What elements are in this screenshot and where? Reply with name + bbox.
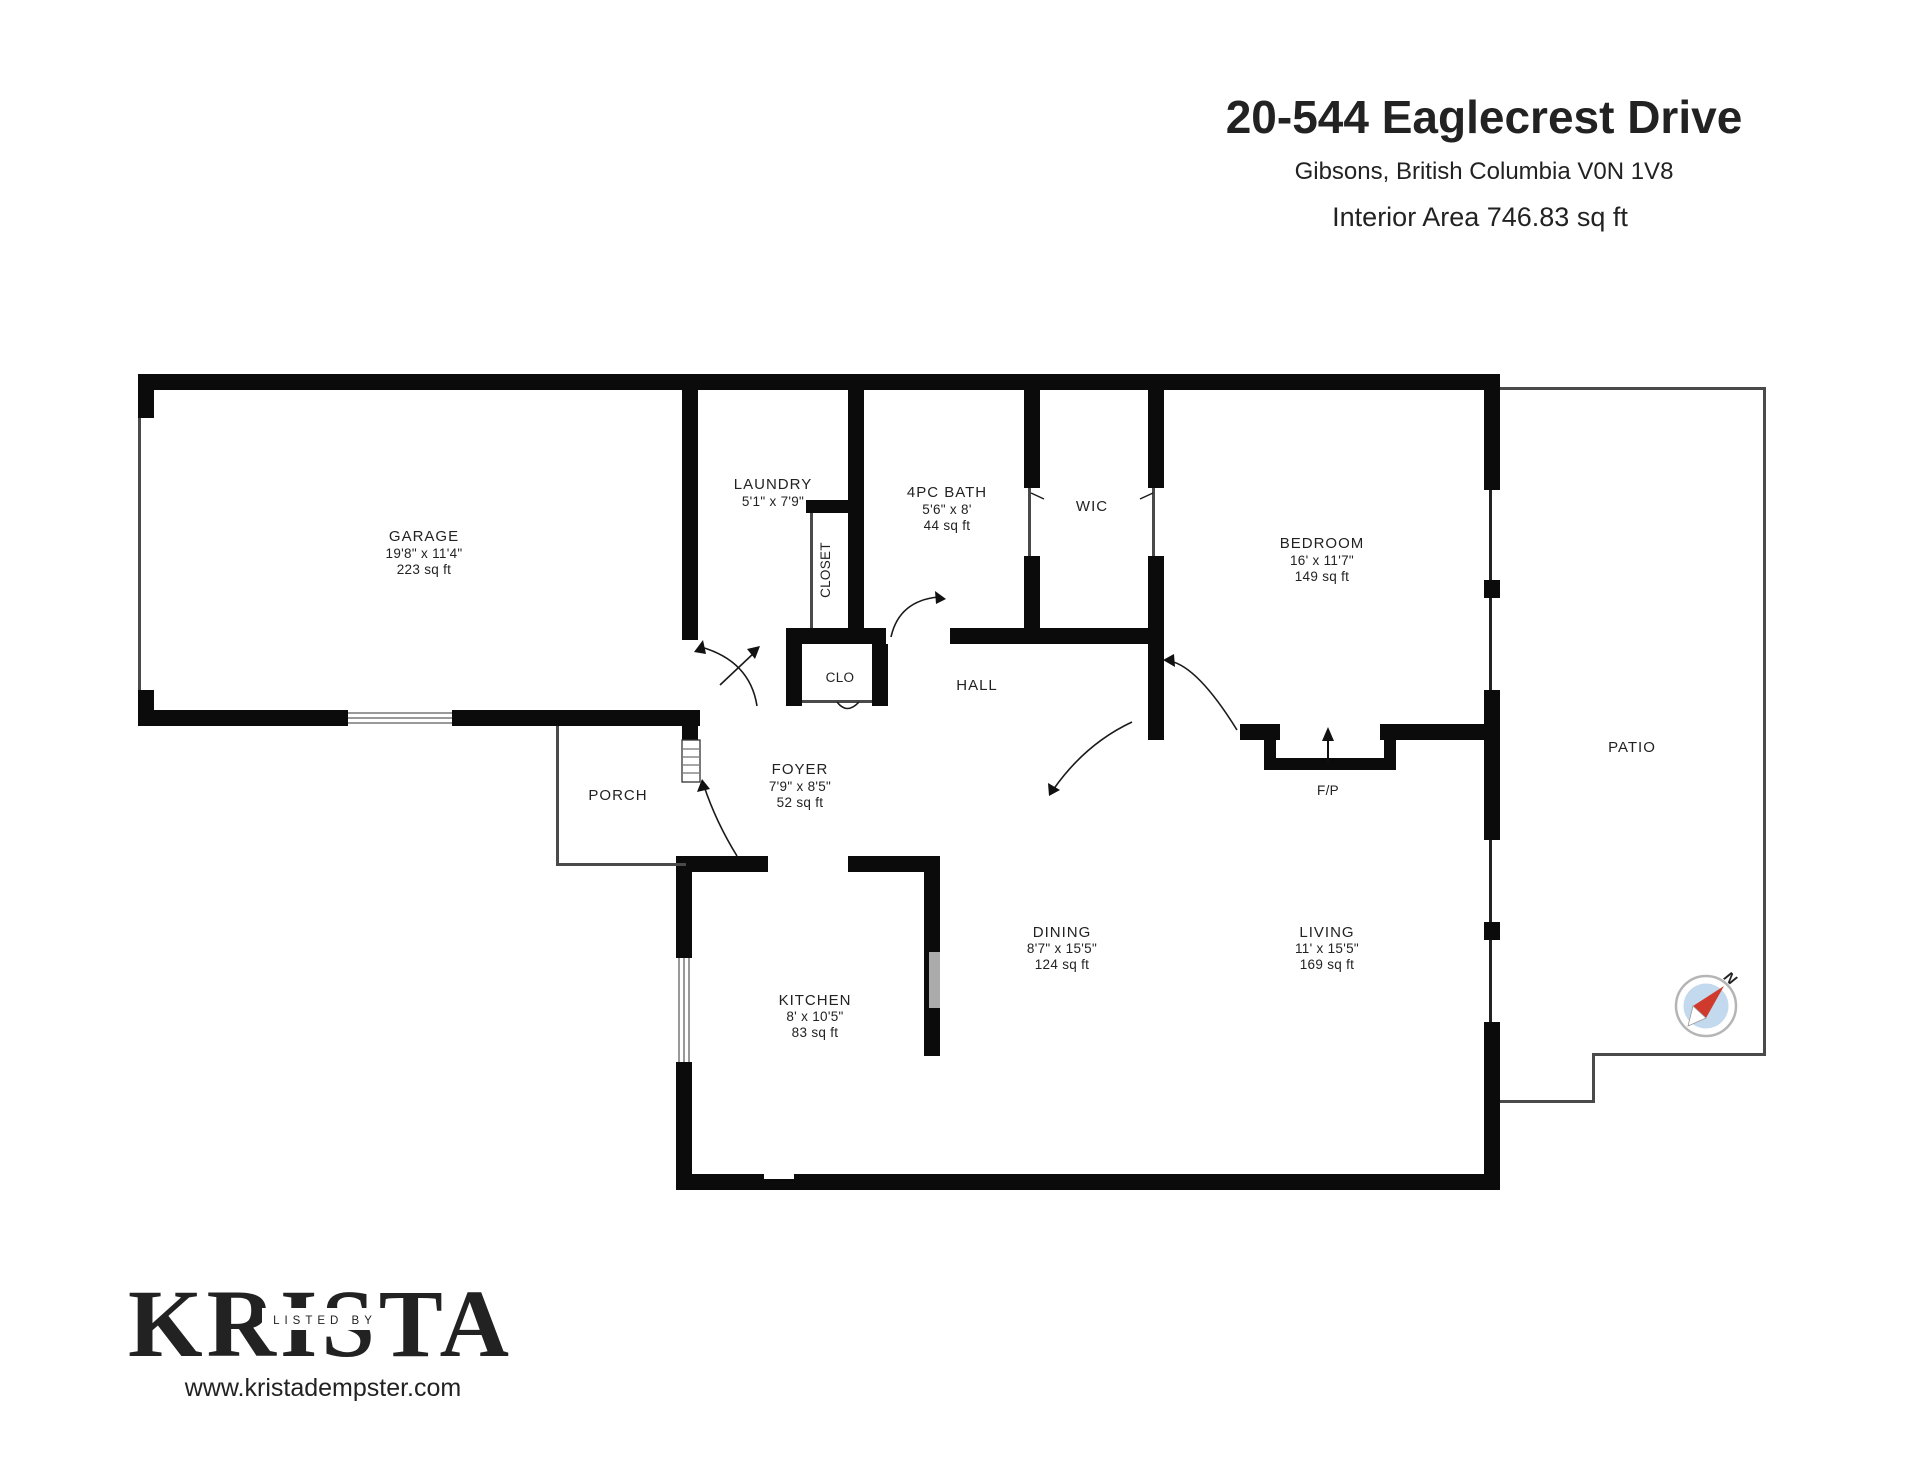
room-name: HALL: [956, 677, 998, 694]
wall-segment: [802, 628, 886, 644]
wall-segment: [1024, 556, 1040, 644]
wall-segment: [1484, 922, 1500, 940]
room-label-foyer: FOYER 7'9" x 8'5" 52 sq ft: [769, 761, 831, 810]
room-label-living: LIVING 11' x 15'5" 169 sq ft: [1295, 924, 1359, 972]
porch-outline: [556, 863, 686, 866]
room-label-closet: CLOSET: [818, 542, 833, 598]
wall-segment: [676, 856, 768, 872]
window-line: [348, 717, 452, 719]
room-label-dining: DINING 8'7" x 15'5" 124 sq ft: [1027, 924, 1097, 972]
patio-outline: [1592, 1053, 1766, 1056]
wall-segment: [806, 500, 848, 513]
room-name: WIC: [1076, 498, 1108, 515]
wall-segment: [676, 1062, 692, 1190]
wall-segment: [1240, 724, 1280, 740]
wall-segment: [452, 710, 700, 726]
room-name: LIVING: [1299, 924, 1354, 941]
fireplace-wall: [1384, 740, 1396, 770]
wall-segment: [682, 726, 698, 740]
door-arc-entry: [704, 786, 737, 856]
door-tick: [1140, 493, 1153, 499]
window-line: [1489, 940, 1492, 1022]
room-name: LAUNDRY: [734, 476, 812, 493]
logo-tagline: LISTED BY: [273, 1315, 377, 1327]
room-name: F/P: [1317, 783, 1339, 798]
header: 20-544 Eaglecrest Drive Gibsons, British…: [1226, 91, 1743, 232]
window-line: [1489, 840, 1492, 922]
room-label-clo: CLO: [826, 670, 855, 685]
page-subtitle: Gibsons, British Columbia V0N 1V8: [1295, 158, 1674, 185]
room-dims: 19'8" x 11'4": [386, 546, 463, 561]
room-label-garage: GARAGE 19'8" x 11'4" 223 sq ft: [386, 528, 463, 577]
wall-segment: [1148, 390, 1164, 488]
wall-segment: [848, 390, 864, 644]
wall-segment: [786, 628, 802, 706]
window-line: [348, 722, 452, 724]
room-area: 223 sq ft: [397, 562, 452, 577]
wall-segment: [138, 710, 348, 726]
room-name: PORCH: [588, 787, 647, 804]
room-labels: GARAGE 19'8" x 11'4" 223 sq ft LAUNDRY 5…: [386, 476, 1656, 1040]
room-name: KITCHEN: [779, 992, 852, 1009]
page-title: 20-544 Eaglecrest Drive: [1226, 91, 1743, 143]
wall-segment: [1484, 580, 1500, 598]
room-label-wic: WIC: [1076, 498, 1108, 515]
room-dims: 8'7" x 15'5": [1027, 941, 1097, 956]
room-name: CLO: [826, 670, 855, 685]
footer: KRISTA LISTED BY www.kristadempster.com: [128, 1270, 513, 1402]
room-area: 124 sq ft: [1035, 957, 1090, 972]
room-label-laundry: LAUNDRY 5'1" x 7'9": [734, 476, 812, 509]
wall-segment: [676, 1174, 1500, 1190]
door-arrow: [1163, 654, 1175, 667]
wall-segment: [1484, 690, 1500, 840]
room-label-fireplace: F/P: [1317, 783, 1339, 798]
floorplan-drawing: 20-544 Eaglecrest Drive Gibsons, British…: [0, 0, 1920, 1483]
compass: N: [1676, 969, 1740, 1036]
patio-outline: [1500, 1100, 1595, 1103]
patio-outline: [1592, 1053, 1595, 1103]
wall-segment: [1024, 390, 1040, 488]
room-name: FOYER: [772, 761, 829, 778]
door-arrow: [694, 640, 706, 654]
room-area: 149 sq ft: [1295, 569, 1350, 584]
room-area: 44 sq ft: [924, 518, 971, 533]
room-label-bedroom: BEDROOM 16' x 11'7" 149 sq ft: [1280, 535, 1365, 584]
room-label-bath: 4PC BATH 5'6" x 8' 44 sq ft: [907, 484, 987, 533]
window-line: [688, 958, 690, 1062]
porch-outline: [556, 726, 559, 866]
wall-segment: [1380, 724, 1500, 740]
wall-segment: [1148, 644, 1164, 740]
wall-segment: [1148, 556, 1164, 644]
door-line: [1152, 488, 1155, 556]
room-dims: 11' x 15'5": [1295, 941, 1359, 956]
room-name: 4PC BATH: [907, 484, 987, 501]
room-area: 169 sq ft: [1300, 957, 1355, 972]
wall-segment: [950, 628, 1148, 644]
room-area: 52 sq ft: [777, 795, 824, 810]
patio-outline: [1763, 387, 1766, 1056]
door-line: [1028, 488, 1031, 556]
door-arrow: [935, 591, 946, 604]
door-tick: [1031, 493, 1044, 499]
outlines: [556, 387, 1766, 1103]
wall-segment: [1484, 390, 1500, 490]
room-area: 83 sq ft: [792, 1025, 839, 1040]
room-label-kitchen: KITCHEN 8' x 10'5" 83 sq ft: [779, 992, 852, 1040]
room-label-patio: PATIO: [1608, 739, 1656, 756]
room-name: GARAGE: [389, 528, 459, 545]
wall-segment: [848, 856, 940, 872]
entry-steps: [682, 740, 700, 782]
window-line: [1489, 598, 1492, 690]
wall-notch: [764, 1174, 794, 1179]
door-arrow: [1048, 783, 1060, 796]
fireplace-wall: [1264, 758, 1396, 770]
wall-segment: [872, 644, 888, 706]
website-link: www.kristadempster.com: [184, 1374, 461, 1402]
door-arc-bath: [891, 597, 938, 637]
window-line: [683, 958, 685, 1062]
wall-segment: [1484, 1022, 1500, 1190]
room-dims: 5'1" x 7'9": [742, 494, 804, 509]
room-name: DINING: [1033, 924, 1092, 941]
room-name: CLOSET: [818, 542, 833, 598]
door-arc-bedroom: [1170, 661, 1237, 730]
window-line: [1489, 490, 1492, 580]
room-label-porch: PORCH: [588, 787, 647, 804]
fireplace-arrow: [1322, 727, 1334, 741]
room-name: PATIO: [1608, 739, 1656, 756]
room-dims: 16' x 11'7": [1290, 553, 1354, 568]
room-name: BEDROOM: [1280, 535, 1365, 552]
interior-area-label: Interior Area 746.83 sq ft: [1332, 202, 1628, 232]
room-label-hall: HALL: [956, 677, 998, 694]
counter-strip: [929, 952, 940, 1008]
patio-outline: [1500, 387, 1766, 390]
window-line: [348, 712, 452, 714]
floorplan-page: 20-544 Eaglecrest Drive Gibsons, British…: [0, 0, 1920, 1483]
wall-segment: [138, 374, 1500, 390]
door-arc-hall: [1053, 722, 1132, 790]
window-line: [678, 958, 680, 1062]
wall-segment: [682, 390, 698, 640]
room-dims: 7'9" x 8'5": [769, 779, 831, 794]
room-dims: 5'6" x 8': [922, 502, 971, 517]
wall-segment: [138, 390, 154, 418]
closet-line: [810, 513, 813, 628]
room-dims: 8' x 10'5": [786, 1009, 843, 1024]
garage-door-line: [138, 418, 141, 690]
